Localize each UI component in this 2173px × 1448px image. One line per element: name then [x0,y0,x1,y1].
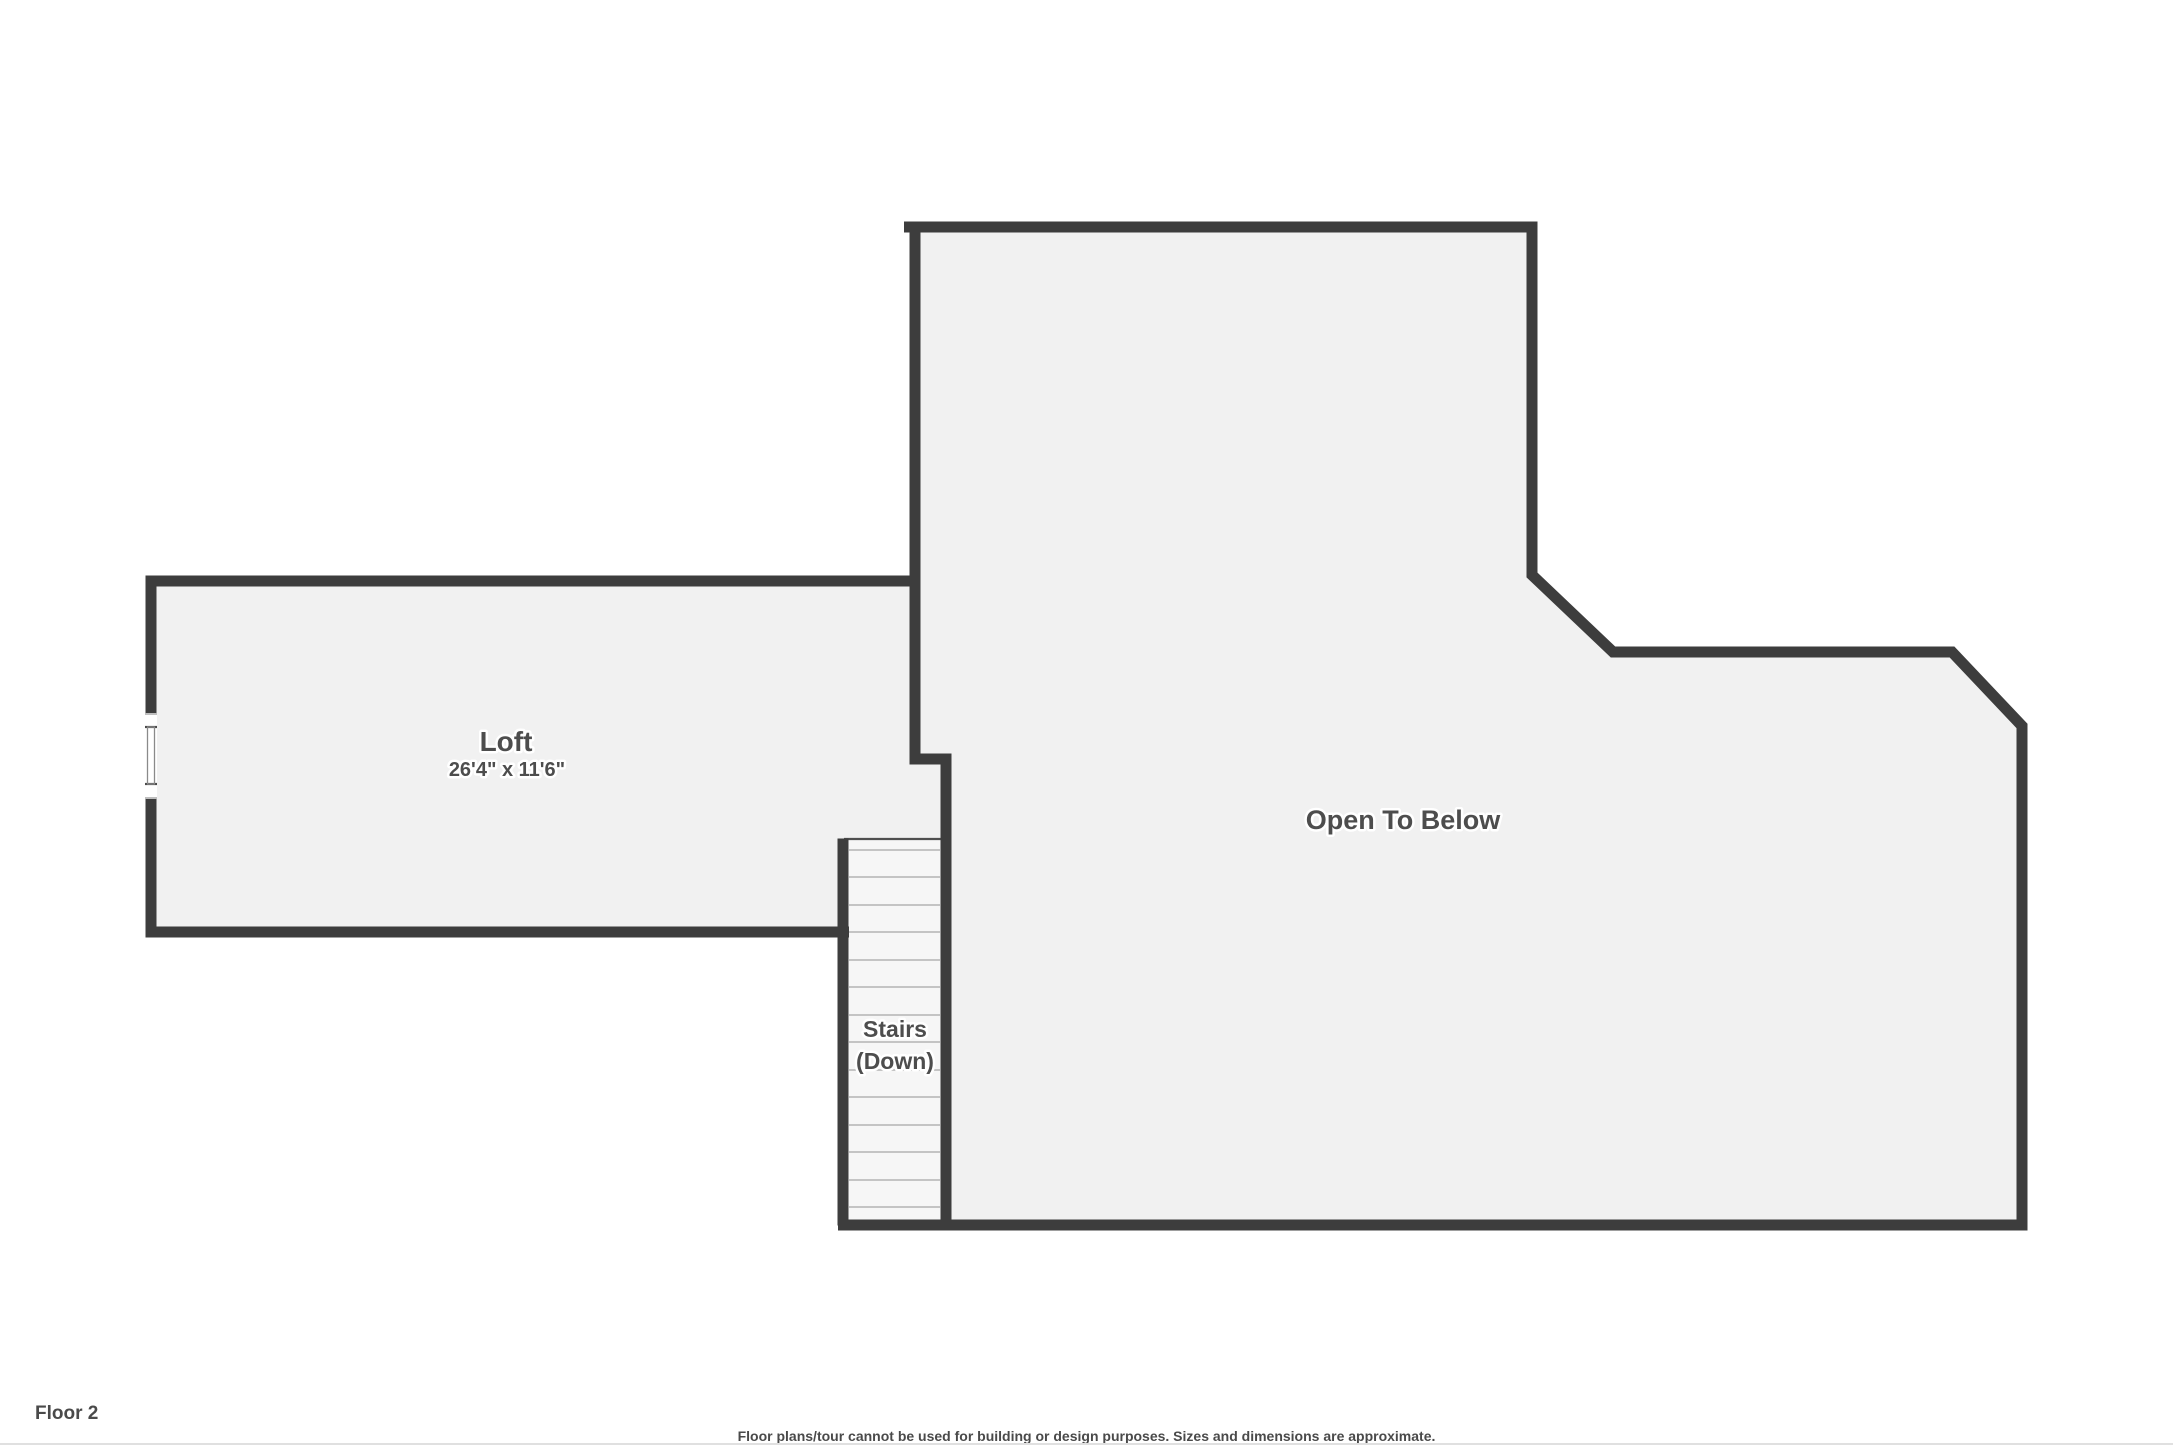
floorplan-svg: Loft 26'4" x 11'6" Open To Below Stairs … [0,0,2173,1448]
loft-dimensions: 26'4" x 11'6" [449,759,565,781]
loft-label: Loft [480,726,533,757]
stairs-label-line2: (Down) [856,1048,934,1074]
floorplan-page: Loft 26'4" x 11'6" Open To Below Stairs … [0,0,2173,1448]
open-to-below-label: Open To Below [1306,805,1501,835]
stairs-label-line1: Stairs [863,1016,927,1042]
open-to-below-floor [915,227,2022,1225]
bottom-divider [0,1443,2173,1445]
floor-label: Floor 2 [35,1404,98,1423]
floor-areas [151,227,2022,1225]
window-icon [145,713,157,799]
loft-floor [151,581,946,932]
